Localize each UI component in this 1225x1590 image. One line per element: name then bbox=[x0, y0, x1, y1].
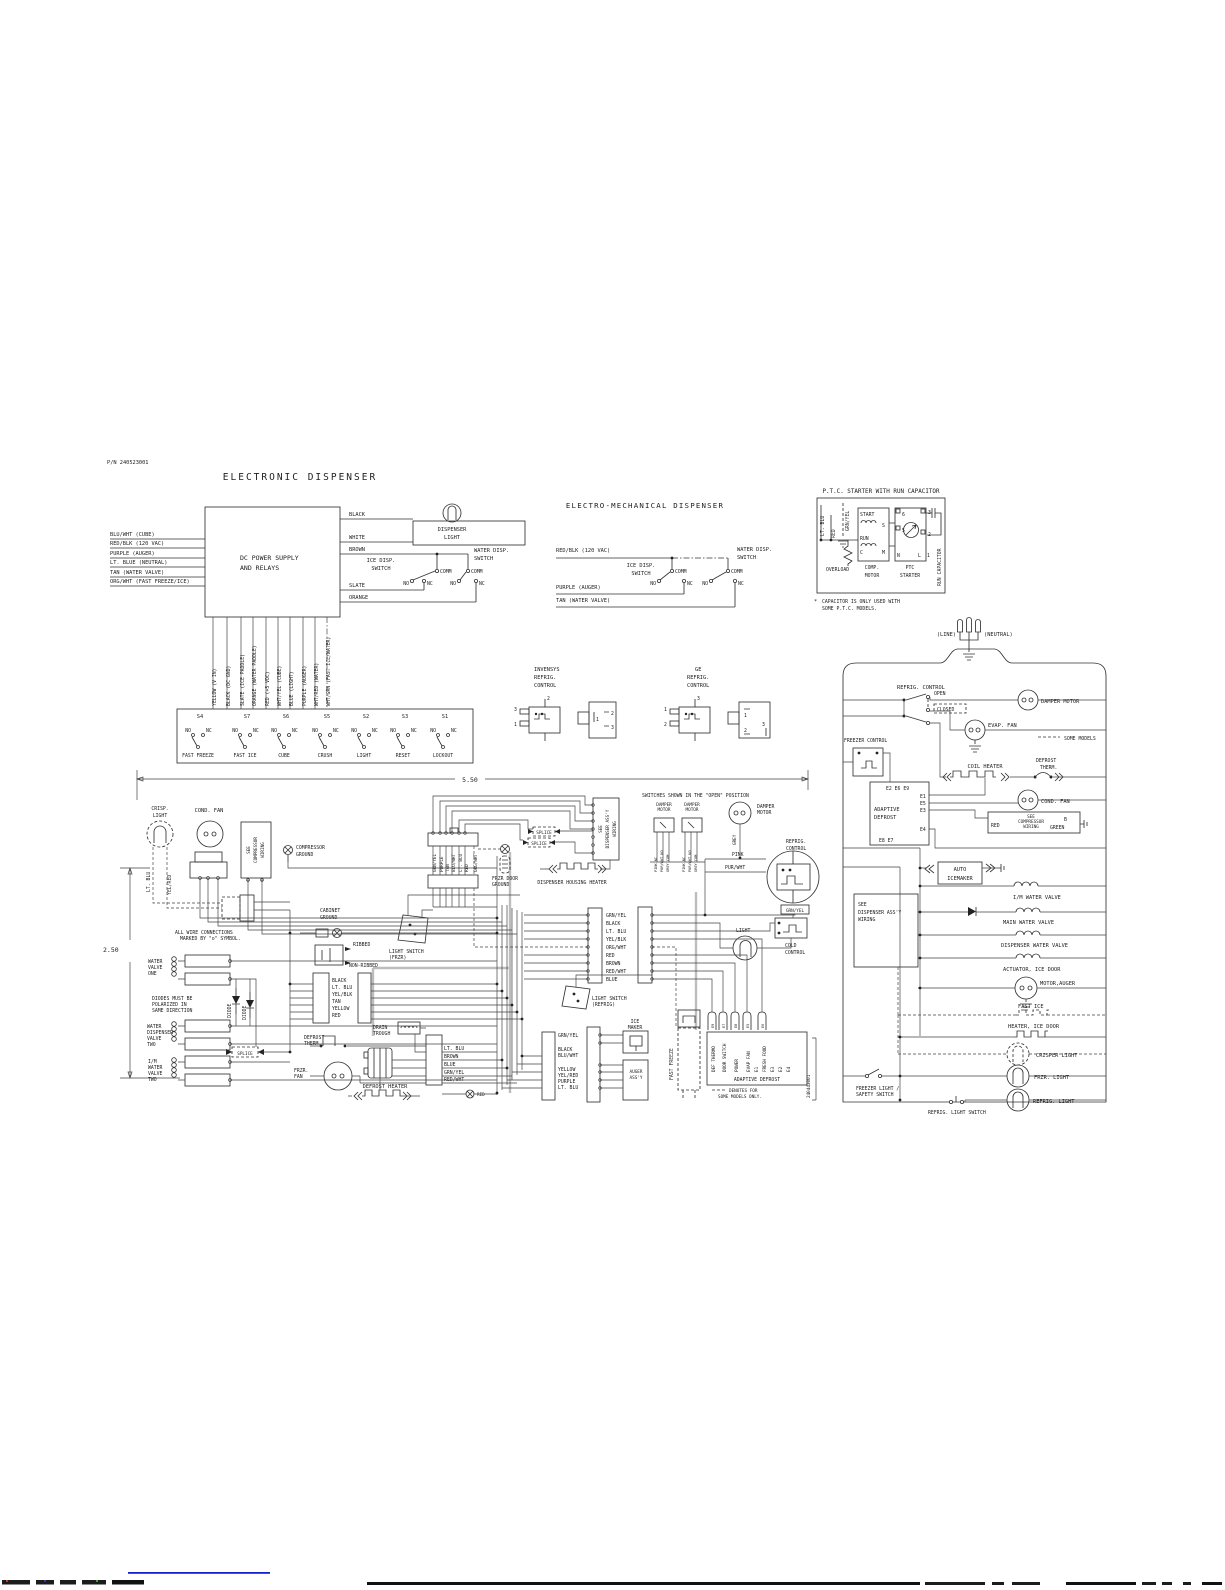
ribbed-label: RIBBED bbox=[353, 942, 370, 948]
terminal-3: 3 bbox=[611, 725, 614, 731]
open-label: OPEN bbox=[934, 691, 946, 697]
compressor-ground-label1: COMPRESSOR bbox=[296, 845, 325, 851]
switch-id: S3 bbox=[402, 714, 408, 720]
refrig-control-label: REFRIG. CONTROL bbox=[897, 685, 945, 691]
wire-label: GRN/YEL bbox=[444, 1070, 464, 1076]
water-dispenser-switch-label1: WATER DISP. bbox=[737, 547, 772, 553]
auto-icemaker-label2: ICEMAKER bbox=[947, 876, 973, 882]
ge-label1: GE bbox=[695, 667, 701, 673]
nc-label: NC bbox=[738, 581, 744, 587]
switch-label: FAST ICE bbox=[233, 753, 256, 759]
red-label: RED bbox=[991, 823, 1000, 829]
wire-label-vertical: SLATE (ICE PADDLE) bbox=[240, 654, 246, 706]
e4-terminal: E4 bbox=[920, 827, 926, 833]
wire-label: BLU/WHT bbox=[558, 1053, 578, 1059]
wire-label-vertical: RED (+5 VDC) bbox=[265, 671, 271, 706]
comm-label: COMM bbox=[471, 569, 483, 575]
water-dispenser-valve-two-label1: WATER bbox=[147, 1024, 162, 1030]
water-valve-one-label2: VALVE bbox=[148, 965, 163, 971]
terminal-3: 3 bbox=[762, 722, 765, 728]
ad-column-label: E3 bbox=[770, 1066, 776, 1072]
freezer-control-label: FREEZER CONTROL bbox=[844, 738, 887, 744]
page-background bbox=[0, 0, 1225, 1585]
see-dispenser-label3: WIRING bbox=[612, 821, 618, 837]
part-number: P/N 240523001 bbox=[107, 460, 148, 466]
damper-motor-label2: MOTOR bbox=[757, 810, 772, 816]
ge-label2: REFRIG. bbox=[687, 675, 709, 681]
ad-column-label: DEF THERMO bbox=[711, 1046, 717, 1072]
im-water-valve-two-label3: VALVE bbox=[148, 1071, 163, 1077]
wire-label-vertical: YEL/RED bbox=[167, 875, 173, 895]
ad-column-label: E4 bbox=[786, 1066, 792, 1072]
e-terminals-top: E2 E6 E9 bbox=[886, 786, 909, 792]
dispenser-water-valve-label: DISPENSER WATER VALVE bbox=[1001, 943, 1068, 949]
ad-column-label: EVAP FAN bbox=[746, 1051, 752, 1072]
wire-label: BROWN bbox=[606, 961, 621, 967]
adaptive-defrost-label1: ADAPTIVE bbox=[874, 807, 900, 813]
nc-label: NC bbox=[427, 581, 433, 587]
water-valve-one-label3: ONE bbox=[148, 971, 157, 977]
no-label: NO bbox=[403, 581, 409, 587]
wire-label: LT. BLU bbox=[332, 985, 352, 991]
terminal-2: 2 bbox=[664, 722, 667, 728]
wire-label: YELLOW bbox=[332, 1006, 349, 1012]
nc-label: NC bbox=[687, 581, 693, 587]
water-dispenser-switch-label1: WATER DISP. bbox=[474, 548, 509, 554]
pin-label-vertical: GREY COM bbox=[666, 854, 670, 872]
no-label: NO bbox=[232, 728, 238, 734]
invensys-label2: REFRIG. bbox=[534, 675, 556, 681]
plug-label: E8 bbox=[734, 1024, 738, 1028]
ice-dispenser-switch-label1: ICE DISP. bbox=[627, 563, 656, 569]
wiring-diagram: P/N 240523001 ELECTRONIC DISPENSER DC PO… bbox=[0, 0, 1225, 1585]
damper-motor-label2: MOTOR bbox=[686, 807, 699, 813]
b-label: B bbox=[1064, 817, 1067, 823]
wire-label: PURPLE bbox=[558, 1079, 575, 1085]
no-label: NO bbox=[271, 728, 277, 734]
dc-power-supply-label2: AND RELAYS bbox=[240, 564, 279, 572]
electronic-dispenser-title: ELECTRONIC DISPENSER bbox=[223, 472, 377, 483]
wire-label: GRN/YEL bbox=[558, 1033, 578, 1039]
neutral-label: (NEUTRAL) bbox=[984, 632, 1013, 638]
some-models-label: SOME MODELS bbox=[1064, 736, 1096, 742]
wire-label: WHITE bbox=[349, 535, 365, 541]
actuator-ice-door-label: ACTUATOR, ICE DOOR bbox=[1003, 967, 1061, 973]
wire-label-vertical: RED bbox=[831, 529, 837, 538]
plug-label: E7 bbox=[722, 1024, 726, 1028]
defrost-therm-label1: DEFROST bbox=[1036, 758, 1056, 764]
c-terminal-label: C bbox=[860, 550, 863, 556]
refrig-control-label1: REFRIG. bbox=[786, 839, 806, 845]
comp-motor-label2: MOTOR bbox=[865, 573, 880, 579]
blue-underline bbox=[128, 1572, 270, 1574]
adaptive-defrost-label2: DEFROST bbox=[874, 815, 897, 821]
no-label: NO bbox=[312, 728, 318, 734]
terminal-3: 3 bbox=[514, 707, 517, 713]
frzr-fan-label2: FAN bbox=[294, 1074, 303, 1080]
frzr-fan-label1: FRZR. bbox=[294, 1068, 308, 1074]
diode-note3: SAME DIRECTION bbox=[152, 1008, 193, 1014]
auto-icemaker-label1: AUTO bbox=[954, 867, 967, 873]
closed-label: CLOSED bbox=[937, 707, 954, 713]
cond-fan-label: COND. FAN bbox=[195, 808, 224, 814]
crisp-light-label2: LIGHT bbox=[153, 813, 168, 819]
see-dispenser-label3: WIRING bbox=[858, 917, 875, 923]
no-label: NO bbox=[650, 581, 656, 587]
splice-label: SPLICE bbox=[536, 830, 552, 836]
ptc-starter-label1: PTC bbox=[906, 565, 915, 571]
nc-label: NC bbox=[411, 728, 417, 734]
im-water-valve-two-label1: I/M bbox=[148, 1059, 157, 1065]
nc-label: NC bbox=[451, 728, 457, 734]
wire-label: SLATE bbox=[349, 583, 365, 589]
see-dispenser-label1: SEE bbox=[598, 825, 604, 833]
nc-label: NC bbox=[253, 728, 259, 734]
defrost-therm-label2: THERM. bbox=[1040, 765, 1057, 771]
wire-label: YEL/RED bbox=[558, 1073, 578, 1079]
terminal-3: 3 bbox=[697, 696, 700, 702]
ge-label3: CONTROL bbox=[687, 683, 709, 689]
pin-label-vertical: GREY COM bbox=[694, 854, 698, 872]
see-compressor-label3: WIRING bbox=[1023, 824, 1039, 830]
wire-connections-note1: ALL WIRE CONNECTIONS bbox=[175, 930, 233, 936]
invensys-label3: CONTROL bbox=[534, 683, 556, 689]
comm-label: COMM bbox=[731, 569, 743, 575]
dispenser-housing-heater-label: DISPENSER HOUSING HEATER bbox=[537, 880, 606, 886]
water-dispenser-valve-two-label3: VALVE bbox=[147, 1036, 162, 1042]
fast-ice-label: FAST ICE bbox=[1018, 1004, 1044, 1010]
wire-label-vertical: WHT/RED (WATER) bbox=[314, 663, 320, 706]
line-label: (LINE) bbox=[937, 632, 956, 638]
see-dispenser-label2: DISPENSER ASS'Y bbox=[605, 809, 611, 848]
light-switch-frzr-label2: (FRZR) bbox=[389, 955, 406, 961]
auger-assy-label1: AUGER bbox=[630, 1069, 643, 1075]
wire-label: BLUE bbox=[444, 1062, 456, 1068]
no-label: NO bbox=[390, 728, 396, 734]
e1-terminal: E1 bbox=[920, 794, 926, 800]
water-dispenser-valve-two-label4: TWO bbox=[147, 1042, 156, 1048]
switch-id: S7 bbox=[244, 714, 250, 720]
water-dispenser-switch-label2: SWITCH bbox=[474, 556, 493, 562]
invensys-label1: INVENSYS bbox=[534, 667, 560, 673]
light-switch-refrig-label1: LIGHT SWITCH bbox=[592, 996, 627, 1002]
auger-assy-label2: ASS'Y bbox=[630, 1075, 643, 1081]
wire-label: LT. BLUE (NEUTRAL) bbox=[110, 560, 167, 566]
defrost-heater-label: DEFROST HEATER bbox=[363, 1084, 408, 1090]
terminal-1: 1 bbox=[744, 713, 747, 719]
switch-id: S2 bbox=[363, 714, 369, 720]
wire-label-vertical: BLACK (DC GND) bbox=[226, 666, 232, 706]
wire-label: PURPLE (AUGER) bbox=[556, 585, 601, 591]
dimension-height-value: 2.50 bbox=[103, 946, 119, 954]
wire-label: TAN (WATER VALVE) bbox=[110, 570, 164, 576]
terminal-1: 1 bbox=[514, 722, 517, 728]
terminal-5: 5 bbox=[902, 528, 905, 534]
wire-label-vertical: PURPLE (AUGER) bbox=[302, 666, 308, 706]
wire-label-vertical: GRN/YEL bbox=[845, 511, 851, 531]
wire-label: YELLOW bbox=[558, 1067, 575, 1073]
wire-label: BROWN bbox=[444, 1054, 459, 1060]
water-dispenser-valve-two-label2: DISPENSER bbox=[147, 1030, 173, 1036]
wire-label: RED/BLK (120 VAC) bbox=[556, 548, 610, 554]
splice-label: SPLICE bbox=[237, 1051, 253, 1057]
freezer-light-safety-label2: SAFETY SWITCH bbox=[856, 1092, 894, 1098]
wire-label: TAN (WATER VALVE) bbox=[556, 598, 610, 604]
ad-column-label: FRESH FOOD bbox=[762, 1046, 768, 1072]
wire-label: RED bbox=[606, 953, 615, 959]
diode-label: DIODE bbox=[227, 1003, 233, 1018]
ice-dispenser-switch-label2: SWITCH bbox=[631, 571, 650, 577]
ad-column-label: E2 bbox=[778, 1066, 784, 1072]
im-water-valve-label: I/M WATER VALVE bbox=[1013, 895, 1061, 901]
dispenser-light-label2: LIGHT bbox=[444, 535, 461, 541]
heater-ice-door-label: HEATER, ICE DOOR bbox=[1008, 1024, 1060, 1030]
ice-maker-label1: ICE bbox=[631, 1019, 640, 1025]
comm-label: COMM bbox=[675, 569, 687, 575]
run-capacitor-label: RUN CAPACITOR bbox=[937, 548, 943, 586]
freezer-light-safety-label1: FREEZER LIGHT / bbox=[856, 1086, 899, 1092]
see-compressor-label2: COMPRESSOR bbox=[253, 837, 259, 863]
ptc-starter-label2: STARTER bbox=[900, 573, 920, 579]
wire-label-vertical: LT. BLU bbox=[146, 872, 152, 892]
wire-label: RED/WHT bbox=[606, 969, 626, 975]
nc-label: NC bbox=[206, 728, 212, 734]
ad-note2: SOME MODELS ONLY. bbox=[718, 1094, 762, 1100]
compressor-ground-label2: GROUND bbox=[296, 852, 313, 858]
comp-motor-label1: COMP. bbox=[865, 565, 879, 571]
nc-label: NC bbox=[292, 728, 298, 734]
pin-label-vertical: PUR/WHT NO bbox=[688, 850, 692, 872]
wire-label: ORANGE bbox=[349, 595, 368, 601]
ptc-note2: SOME P.T.C. MODELS. bbox=[822, 606, 877, 612]
terminal-2: 2 bbox=[547, 696, 550, 702]
diode-label: DIODE bbox=[242, 1005, 248, 1020]
wire-label-vertical: WHT/YEL (CUBE) bbox=[277, 666, 283, 706]
green-label: GREEN bbox=[1050, 825, 1065, 831]
wire-label: LT. BLU bbox=[606, 929, 626, 935]
plug-label: E6 bbox=[761, 1024, 765, 1028]
wire-label: YEL/BLK bbox=[606, 937, 626, 943]
terminal-2: 2 bbox=[928, 532, 931, 538]
wire-label-vertical: YELLOW (V IN) bbox=[212, 668, 218, 706]
ptc-title: P.T.C. STARTER WITH RUN CAPACITOR bbox=[822, 489, 939, 495]
drain-trough-label2: TROUGH bbox=[373, 1031, 390, 1037]
switch-label: RESET bbox=[396, 753, 411, 759]
ice-dispenser-switch-label1: ICE DISP. bbox=[367, 558, 396, 564]
cold-control-label2: CONTROL bbox=[785, 950, 805, 956]
motor-auger-label: MOTOR,AUGER bbox=[1040, 981, 1076, 987]
water-valve-one-label1: WATER bbox=[148, 959, 163, 965]
terminal-3: 3 bbox=[928, 510, 931, 516]
nc-label: NC bbox=[333, 728, 339, 734]
terminal-1: 1 bbox=[596, 717, 599, 723]
wire-label-vertical: WHT/GRN (FAST ICE/WATER) bbox=[326, 637, 332, 706]
defrost-therm-label1: DEFROST bbox=[304, 1035, 324, 1041]
pin-label-vertical: PUR/WHT NO bbox=[660, 850, 664, 872]
wire-label-vertical: BLUE (LIGHT) bbox=[289, 671, 295, 706]
see-compressor-label1: SEE bbox=[246, 846, 252, 854]
wire-label-vertical: GREY bbox=[732, 834, 738, 845]
terminal-2: 2 bbox=[611, 711, 614, 717]
plug-label: E9 bbox=[711, 1024, 715, 1028]
light-switch-frzr-label1: LIGHT SWITCH bbox=[389, 949, 424, 955]
no-label: NO bbox=[430, 728, 436, 734]
switch-id: S6 bbox=[283, 714, 289, 720]
switch-label: CUBE bbox=[278, 753, 290, 759]
footnote-star: * bbox=[814, 599, 817, 605]
diode-note2: POLARIZED IN bbox=[152, 1002, 187, 1008]
wire-label-vertical: LT. BLU bbox=[820, 516, 826, 536]
coil-heater-label: COIL HEATER bbox=[967, 764, 1003, 770]
pur-wht-label: PUR/WHT bbox=[725, 865, 745, 871]
wire-label-vertical: ORANGE (WATER PADDLE) bbox=[252, 645, 258, 706]
splice-label: SPLICE bbox=[531, 841, 547, 847]
wire-label: BLACK bbox=[349, 512, 366, 518]
switch-label: FAST FREEZE bbox=[182, 753, 214, 759]
grn-yel-label: GRN/YEL bbox=[786, 908, 805, 914]
switch-id: S4 bbox=[197, 714, 203, 720]
switch-label: LOCKOUT bbox=[433, 753, 453, 759]
wire-label: BLUE bbox=[606, 977, 618, 983]
wire-label: BROWN bbox=[349, 547, 365, 553]
ad-column-label: E1 bbox=[754, 1066, 760, 1072]
no-label: NO bbox=[185, 728, 191, 734]
frzr-door-ground-label1: FRZR DOOR bbox=[492, 876, 518, 882]
plug-label: E5 bbox=[746, 1024, 750, 1028]
im-water-valve-two-label4: TWO bbox=[148, 1077, 157, 1083]
dispenser-light-label1: DISPENSER bbox=[438, 527, 468, 533]
switch-label: LIGHT bbox=[357, 753, 372, 759]
e-terminals-bottom: E8 E7 bbox=[879, 838, 894, 844]
n-terminal-label: N bbox=[897, 553, 900, 559]
wire-label: GRN/YEL bbox=[606, 913, 626, 919]
wire-label: ORG/WHT (FAST FREEZE/ICE) bbox=[110, 579, 190, 585]
refrig-light-switch-label: REFRIG. LIGHT SWITCH bbox=[928, 1110, 986, 1116]
run-winding-label: RUN bbox=[860, 536, 869, 542]
pin-label-vertical: PINK NC bbox=[654, 857, 658, 872]
wire-label: BLU/WHT (CUBE) bbox=[110, 532, 155, 538]
no-label: NO bbox=[351, 728, 357, 734]
terminal-1: 1 bbox=[664, 707, 667, 713]
water-dispenser-switch-label2: SWITCH bbox=[737, 555, 756, 561]
start-winding-label: START bbox=[860, 512, 875, 518]
no-label: NO bbox=[450, 581, 456, 587]
terminal-1: 1 bbox=[927, 553, 930, 559]
e3-terminal: E3 bbox=[920, 808, 926, 814]
overload-label: OVERLOAD bbox=[826, 567, 849, 573]
light-switch-refrig-label2: (REFRIG) bbox=[592, 1002, 615, 1008]
im-water-valve-two-label2: WATER bbox=[148, 1065, 163, 1071]
comm-label: COMM bbox=[440, 569, 452, 575]
wire-label: YEL/BLK bbox=[332, 992, 352, 998]
dimension-width-value: 5.50 bbox=[462, 776, 478, 784]
main-water-valve-label: MAIN WATER VALVE bbox=[1003, 920, 1054, 926]
ice-maker-label2: MAKER bbox=[628, 1025, 643, 1031]
wire-label: ORG/WHT bbox=[606, 945, 626, 951]
switch-id: S5 bbox=[324, 714, 330, 720]
no-label: NO bbox=[702, 581, 708, 587]
wire-label: RED/BLK (120 VAC) bbox=[110, 541, 164, 547]
wire-label: PURPLE (AUGER) bbox=[110, 551, 155, 557]
e5-terminal: E5 bbox=[920, 801, 926, 807]
crisp-light-label1: CRISP. bbox=[151, 806, 168, 812]
switch-id: S1 bbox=[442, 714, 448, 720]
switches-open-note: SWITCHES SHOWN IN THE "OPEN" POSITION bbox=[642, 793, 749, 799]
wire-label: LT. BLU bbox=[444, 1046, 464, 1052]
wire-label: RED bbox=[332, 1013, 341, 1019]
adaptive-defrost-title: ADAPTIVE DEFROST bbox=[734, 1077, 780, 1083]
see-dispenser-label2: DISPENSER ASS'Y bbox=[858, 910, 901, 916]
ice-dispenser-switch-label2: SWITCH bbox=[371, 566, 390, 572]
ad-column-label: DOOR SWITCH bbox=[722, 1043, 728, 1072]
l-terminal-label: L bbox=[918, 553, 921, 559]
wire-label: TAN bbox=[332, 999, 341, 1005]
wire-label: LT. BLU bbox=[558, 1085, 578, 1091]
s-terminal-label: S bbox=[882, 523, 885, 529]
cabinet-ground-label1: CABINET bbox=[320, 908, 340, 914]
diagram-part-number-vertical: 240443001 bbox=[806, 1074, 812, 1098]
emd-title: ELECTRO-MECHANICAL DISPENSER bbox=[566, 501, 724, 510]
ad-column-label: POWER bbox=[734, 1059, 740, 1072]
evap-fan-label: EVAP. FAN bbox=[988, 723, 1017, 729]
pink-label: PINK bbox=[732, 852, 744, 858]
fast-freeze-label: FAST FREEZE bbox=[669, 1048, 675, 1080]
wire-label: BLACK bbox=[606, 921, 621, 927]
damper-motor-label2: MOTOR bbox=[658, 807, 671, 813]
ptc-note1: CAPACITOR IS ONLY USED WITH bbox=[822, 599, 900, 605]
pin-label-vertical: PINK NC bbox=[682, 857, 686, 872]
nc-label: NC bbox=[479, 581, 485, 587]
terminal-2: 2 bbox=[744, 728, 747, 734]
switch-label: CRUSH bbox=[318, 753, 333, 759]
nc-label: NC bbox=[372, 728, 378, 734]
wire-label: BLACK bbox=[332, 978, 347, 984]
see-compressor-label3: WIRING bbox=[260, 842, 266, 858]
wire-label: BLACK bbox=[558, 1047, 573, 1053]
ad-note1: DENOTES FOR bbox=[729, 1088, 758, 1094]
red-label: RED bbox=[477, 1092, 485, 1098]
frzr-door-ground-label2: GROUND bbox=[492, 882, 509, 888]
dc-power-supply-label1: DC POWER SUPPLY bbox=[240, 554, 299, 562]
wire-connections-note2: MARKED BY "o" SYMBOL. bbox=[180, 936, 241, 942]
schematic-page: P/N 240523001 ELECTRONIC DISPENSER DC PO… bbox=[0, 0, 1225, 1585]
m-terminal-label: M bbox=[882, 550, 885, 556]
diode-note1: DIODES MUST BE bbox=[152, 996, 193, 1002]
damper-motor-label1: DAMPER bbox=[757, 804, 774, 810]
see-dispenser-label1: SEE bbox=[858, 902, 867, 908]
non-ribbed-label: NON-RIBBED bbox=[349, 963, 378, 969]
terminal-6: 6 bbox=[902, 512, 905, 518]
